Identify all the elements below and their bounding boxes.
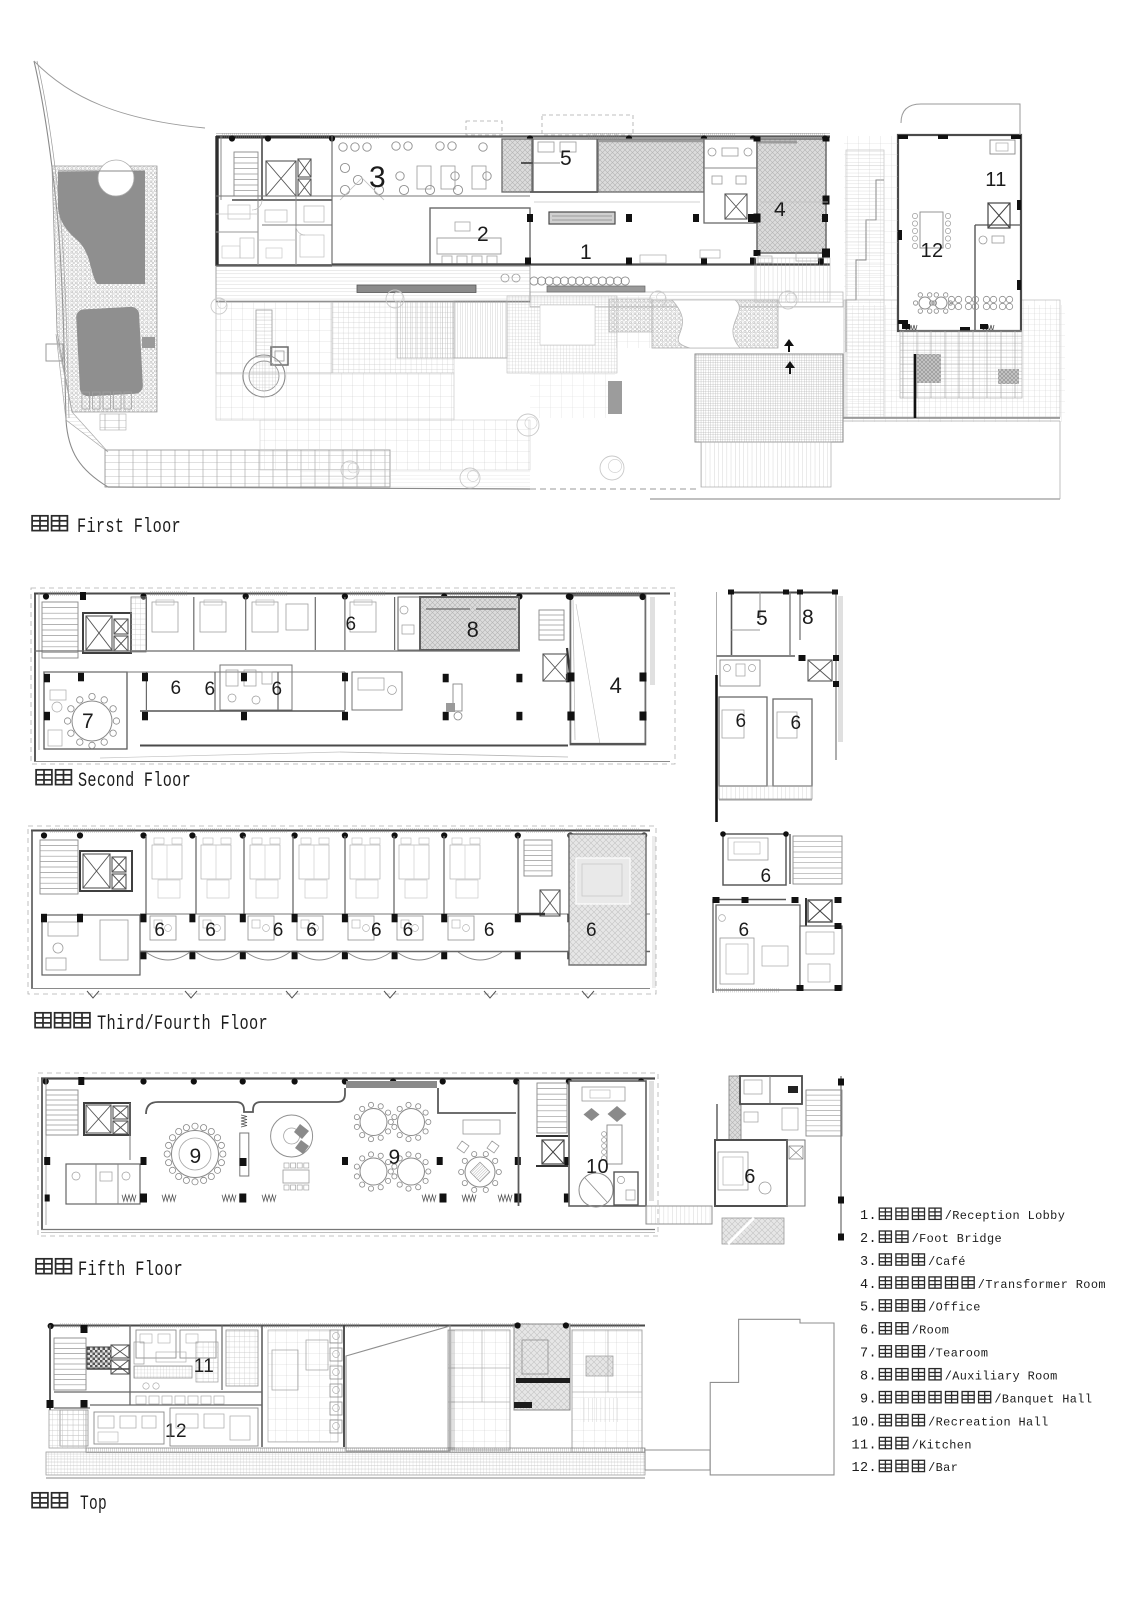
svg-text:4: 4 (610, 673, 623, 698)
svg-text:/Recreation Hall: /Recreation Hall (928, 1415, 1049, 1429)
svg-text:9: 9 (189, 1145, 201, 1168)
svg-text:Second Floor: Second Floor (78, 770, 191, 793)
svg-text:5: 5 (560, 147, 572, 170)
svg-text:6: 6 (205, 679, 216, 700)
svg-text:6.: 6. (860, 1324, 877, 1339)
svg-text:Top: Top (80, 1493, 107, 1516)
svg-text:6: 6 (154, 920, 165, 941)
svg-text:Third/Fourth Floor: Third/Fourth Floor (97, 1013, 268, 1036)
svg-text:6: 6 (205, 920, 216, 941)
svg-text:10.: 10. (851, 1415, 877, 1430)
svg-text:/Bar: /Bar (928, 1461, 958, 1475)
svg-text:6: 6 (586, 920, 597, 941)
svg-text:/Room: /Room (912, 1324, 950, 1338)
svg-text:6: 6 (744, 1166, 756, 1188)
svg-text:3.: 3. (860, 1255, 877, 1270)
svg-text:9: 9 (389, 1146, 401, 1169)
svg-text:6: 6 (791, 713, 802, 734)
svg-text:3: 3 (369, 161, 386, 194)
svg-text:/Office: /Office (928, 1301, 981, 1315)
svg-text:/Kitchen: /Kitchen (912, 1438, 972, 1452)
svg-text:8: 8 (467, 617, 480, 642)
svg-text:Fifth Floor: Fifth Floor (78, 1259, 183, 1282)
svg-text:/Auxiliary Room: /Auxiliary Room (945, 1370, 1058, 1384)
svg-text:6: 6 (306, 920, 317, 941)
svg-text:11.: 11. (851, 1438, 877, 1453)
svg-text:/Foot Bridge: /Foot Bridge (912, 1232, 1002, 1246)
svg-text:2: 2 (477, 223, 489, 246)
svg-text:/Transformer Room: /Transformer Room (978, 1278, 1106, 1292)
svg-text:6: 6 (371, 920, 382, 941)
svg-text:2.: 2. (860, 1232, 877, 1247)
svg-text:6: 6 (171, 678, 182, 699)
svg-text:7.: 7. (860, 1347, 877, 1362)
svg-text:9.: 9. (860, 1392, 877, 1407)
svg-text:1: 1 (580, 241, 592, 264)
svg-text:11: 11 (985, 169, 1007, 191)
svg-text:/Reception Lobby: /Reception Lobby (945, 1209, 1066, 1223)
svg-text:/Tearoom: /Tearoom (928, 1347, 988, 1361)
svg-text:1.: 1. (860, 1209, 877, 1224)
svg-text:4.: 4. (860, 1278, 877, 1293)
svg-text:12.: 12. (851, 1461, 877, 1476)
svg-text:6: 6 (761, 866, 772, 887)
svg-text:6: 6 (403, 920, 414, 941)
svg-text:6: 6 (484, 920, 495, 941)
svg-text:11: 11 (194, 1356, 215, 1377)
svg-text:4: 4 (774, 198, 786, 221)
svg-text:5.: 5. (860, 1301, 877, 1316)
svg-text:6: 6 (736, 711, 747, 732)
svg-text:/Café: /Café (928, 1255, 966, 1269)
svg-text:8: 8 (802, 606, 814, 629)
svg-text:6: 6 (739, 920, 750, 941)
svg-text:6: 6 (346, 614, 357, 635)
svg-text:6: 6 (273, 920, 284, 941)
svg-text:8.: 8. (860, 1370, 877, 1385)
svg-text:5: 5 (756, 607, 768, 630)
svg-text:12: 12 (920, 240, 943, 262)
svg-text:First Floor: First Floor (77, 516, 181, 539)
svg-text:6: 6 (272, 679, 283, 700)
svg-text:/Banquet Hall: /Banquet Hall (994, 1392, 1092, 1406)
svg-text:7: 7 (82, 710, 94, 733)
